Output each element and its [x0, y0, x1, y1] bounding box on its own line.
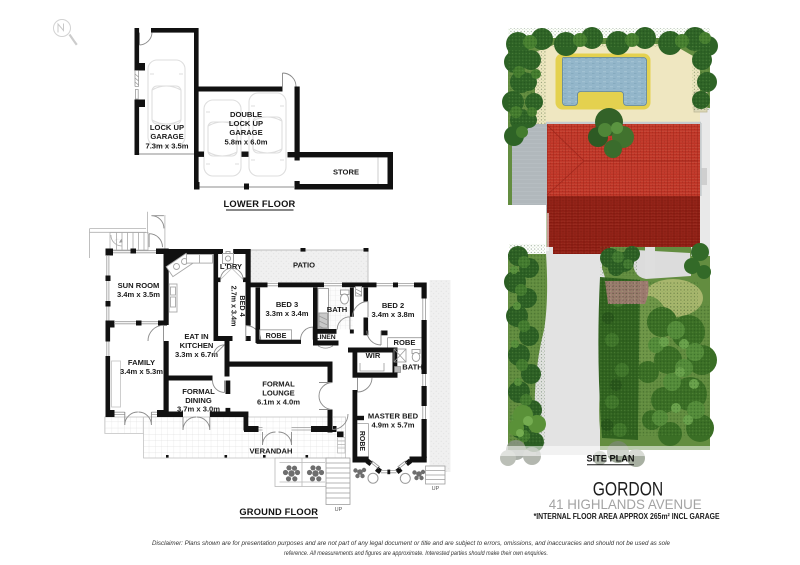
svg-text:BED 2: BED 2 — [382, 301, 404, 310]
svg-text:UP: UP — [335, 507, 343, 513]
svg-text:DOUBLE: DOUBLE — [230, 110, 262, 119]
svg-text:5.8m x 6.0m: 5.8m x 6.0m — [224, 138, 267, 147]
svg-text:LOCK UP: LOCK UP — [150, 123, 184, 132]
svg-text:FAMILY: FAMILY — [128, 358, 155, 367]
svg-text:LOWER FLOOR: LOWER FLOOR — [224, 199, 296, 209]
svg-text:3.4m x 3.8m: 3.4m x 3.8m — [371, 310, 414, 319]
svg-text:MASTER BED: MASTER BED — [368, 412, 419, 421]
svg-text:FORMAL: FORMAL — [182, 387, 215, 396]
svg-text:LOCK UP: LOCK UP — [229, 119, 263, 128]
svg-text:SUN ROOM: SUN ROOM — [118, 281, 160, 290]
svg-text:ROBE: ROBE — [394, 338, 416, 347]
svg-text:ROBE: ROBE — [358, 431, 365, 452]
svg-text:BATH: BATH — [402, 363, 423, 372]
svg-text:FORMAL: FORMAL — [262, 380, 295, 389]
svg-text:GARAGE: GARAGE — [150, 132, 183, 141]
svg-text:6.1m x 4.0m: 6.1m x 4.0m — [257, 398, 300, 407]
svg-text:GARAGE: GARAGE — [229, 128, 262, 137]
svg-text:PATIO: PATIO — [293, 261, 315, 270]
svg-text:3.3m x 6.7m: 3.3m x 6.7m — [175, 350, 218, 359]
svg-text:4.9m x 5.7m: 4.9m x 5.7m — [371, 421, 414, 430]
svg-text:41 HIGHLANDS AVENUE: 41 HIGHLANDS AVENUE — [549, 496, 702, 512]
svg-text:2.7m x 3.4m: 2.7m x 3.4m — [230, 286, 239, 327]
svg-text:EAT IN: EAT IN — [184, 332, 208, 341]
svg-text:Disclaimer: Plans shown are f: Disclaimer: Plans shown are for presenta… — [152, 540, 670, 547]
svg-text:KITCHEN: KITCHEN — [180, 341, 214, 350]
svg-text:UP: UP — [432, 486, 440, 492]
svg-text:LOUNGE: LOUNGE — [262, 389, 295, 398]
svg-text:3.3m x 3.4m: 3.3m x 3.4m — [265, 309, 308, 318]
svg-text:WIR: WIR — [366, 351, 381, 360]
svg-text:3.4m x 5.3m: 3.4m x 5.3m — [120, 367, 163, 376]
svg-text:L'DRY: L'DRY — [220, 262, 242, 271]
svg-text:VERANDAH: VERANDAH — [249, 447, 292, 456]
svg-text:ROBE: ROBE — [266, 331, 287, 340]
svg-text:3.4m x 3.5m: 3.4m x 3.5m — [117, 290, 160, 299]
svg-text:LINEN: LINEN — [315, 334, 335, 341]
svg-text:*INTERNAL FLOOR AREA APPROX 26: *INTERNAL FLOOR AREA APPROX 265m² INCL G… — [534, 512, 720, 521]
svg-text:STORE: STORE — [333, 168, 359, 177]
svg-text:7.3m x 3.5m: 7.3m x 3.5m — [145, 142, 188, 151]
svg-text:BATH: BATH — [327, 305, 348, 314]
svg-text:BED 3: BED 3 — [276, 300, 298, 309]
svg-text:reference. All measurements an: reference. All measurements and figures … — [284, 550, 548, 557]
svg-text:SITE PLAN: SITE PLAN — [587, 454, 635, 464]
svg-text:GROUND FLOOR: GROUND FLOOR — [239, 507, 318, 517]
